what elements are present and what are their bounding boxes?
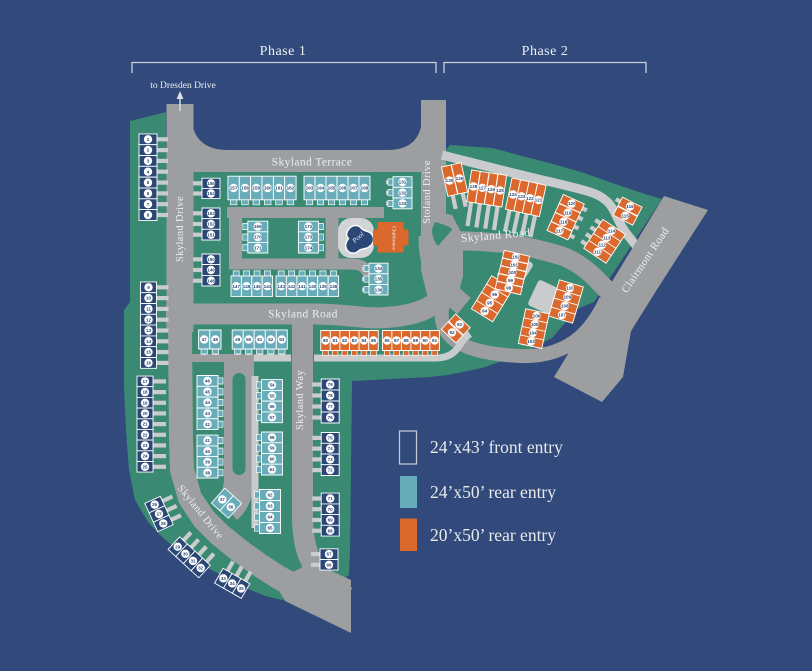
svg-text:49: 49 — [235, 337, 241, 342]
svg-text:90: 90 — [423, 338, 429, 343]
svg-text:63: 63 — [267, 504, 273, 509]
svg-text:16: 16 — [146, 361, 152, 366]
svg-text:154: 154 — [207, 191, 215, 196]
svg-text:11: 11 — [146, 307, 151, 312]
svg-text:128: 128 — [470, 184, 478, 189]
svg-text:Skyland Drive: Skyland Drive — [175, 196, 186, 262]
svg-text:4: 4 — [147, 169, 150, 174]
svg-text:104: 104 — [529, 331, 537, 336]
svg-text:13: 13 — [146, 328, 152, 333]
svg-text:56: 56 — [269, 404, 275, 409]
svg-text:47: 47 — [202, 337, 208, 342]
svg-text:136: 136 — [375, 287, 383, 292]
svg-text:Clubhouse: Clubhouse — [391, 226, 397, 250]
svg-text:146: 146 — [243, 284, 251, 289]
svg-text:Phase 2: Phase 2 — [522, 44, 569, 59]
svg-text:145: 145 — [253, 284, 261, 289]
svg-text:112: 112 — [598, 242, 606, 247]
svg-text:106: 106 — [533, 313, 541, 318]
svg-text:116: 116 — [626, 204, 634, 209]
svg-text:120: 120 — [568, 201, 576, 206]
svg-text:162: 162 — [287, 186, 295, 191]
svg-text:75: 75 — [328, 436, 334, 441]
svg-text:5: 5 — [147, 180, 150, 185]
svg-text:98: 98 — [506, 286, 512, 291]
svg-text:35: 35 — [239, 586, 245, 591]
svg-text:150: 150 — [207, 257, 215, 262]
svg-text:147: 147 — [232, 284, 240, 289]
svg-text:164: 164 — [317, 186, 325, 191]
svg-text:79: 79 — [328, 382, 334, 387]
svg-text:22: 22 — [142, 432, 148, 437]
svg-text:69: 69 — [328, 518, 334, 523]
svg-text:66: 66 — [326, 562, 332, 567]
svg-text:135: 135 — [375, 277, 383, 282]
svg-text:88: 88 — [404, 338, 410, 343]
svg-text:152: 152 — [207, 222, 215, 227]
svg-text:151: 151 — [207, 232, 215, 237]
svg-text:59: 59 — [269, 446, 275, 451]
svg-text:124: 124 — [509, 192, 517, 197]
svg-text:21: 21 — [142, 422, 148, 427]
svg-text:133: 133 — [399, 201, 407, 206]
svg-text:99: 99 — [508, 278, 514, 283]
svg-text:100: 100 — [509, 270, 517, 275]
svg-text:60: 60 — [269, 457, 275, 462]
svg-text:111: 111 — [594, 249, 602, 254]
svg-text:107: 107 — [558, 313, 566, 318]
svg-text:86: 86 — [385, 338, 391, 343]
svg-text:72: 72 — [328, 468, 334, 473]
svg-text:6: 6 — [147, 191, 150, 196]
svg-text:170: 170 — [254, 235, 262, 240]
svg-text:153: 153 — [207, 211, 215, 216]
svg-text:167: 167 — [350, 186, 358, 191]
svg-text:123: 123 — [518, 194, 526, 199]
svg-text:105: 105 — [531, 322, 539, 327]
svg-text:76: 76 — [328, 415, 334, 420]
svg-text:7: 7 — [147, 202, 150, 207]
svg-text:to Dresden Drive: to Dresden Drive — [150, 81, 215, 91]
svg-text:87: 87 — [394, 338, 400, 343]
svg-text:121: 121 — [535, 198, 543, 203]
svg-text:101: 101 — [510, 262, 518, 267]
svg-text:Skyland Way: Skyland Way — [295, 370, 306, 431]
svg-text:44: 44 — [205, 400, 211, 405]
svg-text:155: 155 — [207, 181, 215, 186]
svg-text:41: 41 — [205, 438, 211, 443]
svg-text:42: 42 — [205, 422, 211, 427]
svg-text:33: 33 — [221, 576, 227, 581]
svg-text:70: 70 — [328, 507, 334, 512]
svg-text:159: 159 — [252, 186, 260, 191]
svg-text:85: 85 — [371, 338, 377, 343]
svg-text:57: 57 — [269, 415, 275, 420]
svg-text:67: 67 — [326, 552, 332, 557]
svg-text:102: 102 — [512, 255, 520, 260]
svg-text:51: 51 — [257, 337, 263, 342]
svg-text:40: 40 — [205, 449, 211, 454]
svg-text:149: 149 — [207, 268, 215, 273]
svg-text:74: 74 — [328, 446, 334, 451]
svg-text:166: 166 — [339, 186, 347, 191]
svg-text:141: 141 — [298, 284, 306, 289]
svg-text:113: 113 — [603, 235, 611, 240]
svg-text:161: 161 — [275, 186, 283, 191]
svg-text:12: 12 — [146, 317, 152, 322]
svg-text:114: 114 — [608, 228, 616, 233]
svg-text:169: 169 — [254, 224, 262, 229]
svg-text:36: 36 — [228, 505, 234, 510]
svg-text:58: 58 — [269, 435, 275, 440]
svg-text:118: 118 — [560, 219, 568, 224]
svg-text:143: 143 — [277, 284, 285, 289]
svg-text:61: 61 — [269, 467, 275, 472]
svg-text:39: 39 — [205, 460, 211, 465]
svg-text:28: 28 — [161, 521, 167, 526]
svg-text:24: 24 — [142, 454, 148, 459]
svg-text:93: 93 — [457, 322, 463, 327]
svg-text:Skyland Road: Skyland Road — [268, 309, 338, 321]
svg-text:45: 45 — [205, 389, 211, 394]
svg-text:3: 3 — [147, 159, 150, 164]
svg-text:82: 82 — [342, 338, 348, 343]
svg-text:89: 89 — [413, 338, 419, 343]
svg-text:142: 142 — [288, 284, 296, 289]
svg-text:140: 140 — [309, 284, 317, 289]
svg-text:108: 108 — [561, 304, 569, 309]
svg-text:71: 71 — [328, 496, 334, 501]
svg-text:144: 144 — [264, 284, 272, 289]
svg-text:165: 165 — [328, 186, 336, 191]
svg-text:52: 52 — [268, 337, 274, 342]
svg-text:174: 174 — [305, 245, 313, 250]
svg-text:29: 29 — [175, 544, 181, 549]
svg-text:139: 139 — [319, 284, 327, 289]
svg-text:20: 20 — [142, 411, 148, 416]
svg-text:160: 160 — [264, 186, 272, 191]
svg-text:54: 54 — [269, 383, 275, 388]
svg-text:62: 62 — [267, 493, 273, 498]
svg-text:65: 65 — [267, 526, 273, 531]
svg-text:14: 14 — [146, 339, 152, 344]
svg-text:23: 23 — [142, 443, 148, 448]
svg-text:9: 9 — [147, 285, 150, 290]
svg-text:132: 132 — [399, 190, 407, 195]
svg-text:18: 18 — [142, 390, 148, 395]
svg-text:117: 117 — [556, 228, 564, 233]
svg-text:20’x50’ rear entry: 20’x50’ rear entry — [430, 525, 556, 545]
svg-text:103: 103 — [527, 339, 535, 344]
svg-text:53: 53 — [279, 337, 285, 342]
svg-text:27: 27 — [156, 512, 162, 517]
svg-text:91: 91 — [432, 338, 438, 343]
svg-text:158: 158 — [241, 186, 249, 191]
svg-text:138: 138 — [330, 284, 338, 289]
svg-text:68: 68 — [328, 528, 334, 533]
svg-text:122: 122 — [526, 196, 534, 201]
svg-text:92: 92 — [449, 330, 455, 335]
svg-text:2: 2 — [147, 148, 150, 153]
svg-text:173: 173 — [305, 235, 313, 240]
svg-text:48: 48 — [213, 337, 219, 342]
svg-text:26: 26 — [152, 502, 158, 507]
svg-text:127: 127 — [478, 185, 486, 190]
svg-text:73: 73 — [328, 457, 334, 462]
svg-text:168: 168 — [361, 186, 369, 191]
svg-text:134: 134 — [375, 266, 383, 271]
svg-text:129: 129 — [456, 176, 464, 181]
svg-text:109: 109 — [563, 295, 571, 300]
svg-text:46: 46 — [205, 379, 211, 384]
svg-text:50: 50 — [246, 337, 252, 342]
svg-text:19: 19 — [142, 400, 148, 405]
svg-text:126: 126 — [487, 187, 495, 192]
svg-text:78: 78 — [328, 393, 334, 398]
svg-text:Skyland Terrace: Skyland Terrace — [272, 157, 353, 169]
svg-text:15: 15 — [146, 350, 152, 355]
svg-text:Phase 1: Phase 1 — [260, 44, 307, 59]
svg-text:119: 119 — [564, 210, 572, 215]
svg-text:115: 115 — [621, 213, 629, 218]
svg-text:157: 157 — [230, 186, 238, 191]
svg-text:55: 55 — [269, 393, 275, 398]
svg-text:1: 1 — [147, 137, 150, 142]
svg-text:Stoland Drive: Stoland Drive — [422, 160, 433, 224]
svg-text:81: 81 — [333, 338, 339, 343]
svg-text:8: 8 — [147, 213, 150, 218]
svg-text:96: 96 — [492, 292, 498, 297]
svg-text:171: 171 — [254, 245, 262, 250]
svg-text:34: 34 — [230, 581, 236, 586]
svg-text:32: 32 — [198, 566, 204, 571]
svg-text:95: 95 — [487, 301, 493, 306]
svg-text:17: 17 — [142, 379, 148, 384]
svg-text:148: 148 — [207, 278, 215, 283]
svg-text:172: 172 — [305, 224, 313, 229]
svg-text:131: 131 — [399, 180, 407, 185]
svg-text:84: 84 — [361, 338, 367, 343]
svg-text:24’x50’ rear entry: 24’x50’ rear entry — [430, 482, 556, 502]
svg-text:31: 31 — [190, 559, 196, 564]
svg-text:110: 110 — [566, 286, 574, 291]
svg-text:24’x43’ front entry: 24’x43’ front entry — [430, 437, 563, 457]
svg-text:38: 38 — [205, 470, 211, 475]
svg-text:80: 80 — [323, 338, 329, 343]
svg-text:83: 83 — [352, 338, 358, 343]
svg-text:10: 10 — [146, 296, 152, 301]
svg-text:125: 125 — [496, 188, 504, 193]
svg-text:43: 43 — [205, 411, 211, 416]
svg-text:130: 130 — [446, 178, 454, 183]
svg-text:77: 77 — [328, 404, 334, 409]
svg-text:64: 64 — [267, 515, 273, 520]
svg-text:25: 25 — [142, 464, 148, 469]
svg-text:94: 94 — [482, 309, 488, 314]
svg-text:163: 163 — [306, 186, 314, 191]
svg-text:30: 30 — [183, 551, 189, 556]
svg-text:37: 37 — [220, 497, 226, 502]
